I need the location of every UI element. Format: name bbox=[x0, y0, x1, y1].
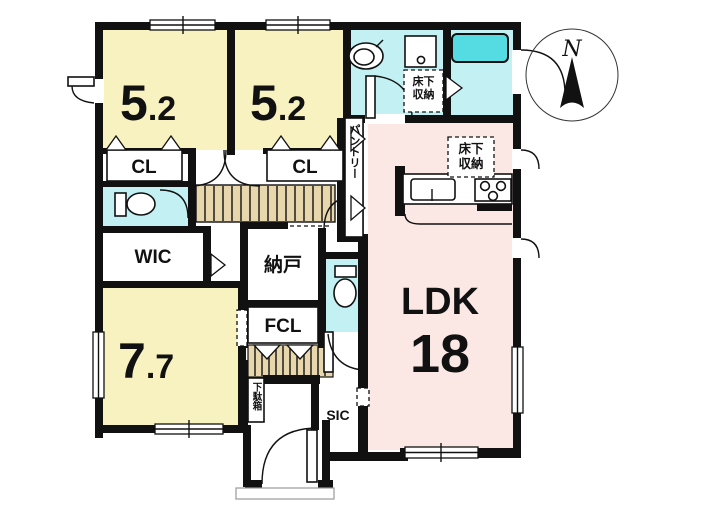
compass: N bbox=[526, 29, 618, 121]
floor-plan-svg: N 5.2 5.2 7.7 CL CL WIC 納戸 FCL SIC LDK 1… bbox=[0, 0, 705, 525]
door-arc-bedroom2 bbox=[224, 150, 260, 186]
sic-ldk-opening bbox=[357, 388, 369, 406]
toilet2-fixture bbox=[334, 266, 356, 307]
nando-label: 納戸 bbox=[264, 253, 302, 276]
wic-label: WIC bbox=[135, 247, 172, 268]
sic-label: SIC bbox=[326, 407, 349, 423]
arc-ldk-swing2 bbox=[521, 239, 539, 258]
pantry-label: パントリー bbox=[348, 124, 361, 179]
underfloor-washroom-line2: 収納 bbox=[413, 87, 435, 101]
door-gap-topleft bbox=[94, 79, 104, 103]
door-leaf-entrance bbox=[307, 430, 317, 482]
washing-machine bbox=[405, 36, 436, 67]
closet1-label: CL bbox=[131, 157, 157, 178]
gap-ldk-swing1 bbox=[512, 149, 522, 169]
closet2-label: CL bbox=[292, 157, 318, 178]
toilet1-fixture bbox=[115, 193, 155, 216]
gap-ldk-swing2 bbox=[512, 238, 522, 258]
underfloor-ldk-line1: 床下 bbox=[458, 141, 484, 156]
underfloor-washroom-line1: 床下 bbox=[413, 74, 435, 88]
ldk-size: 18 bbox=[410, 324, 470, 384]
door-leaf-topleft bbox=[68, 77, 94, 86]
shoe-cabinet-label: 下駄箱 bbox=[251, 382, 264, 411]
stairs bbox=[196, 185, 335, 222]
floor-plan-page: N 5.2 5.2 7.7 CL CL WIC 納戸 FCL SIC LDK 1… bbox=[0, 0, 705, 525]
window-bedroom3-left bbox=[93, 332, 104, 398]
bathtub bbox=[452, 34, 508, 62]
arc-ldk-swing1 bbox=[521, 150, 539, 169]
window-ldk-right bbox=[512, 347, 523, 413]
fcl-label: FCL bbox=[265, 316, 302, 337]
gap-bath-window bbox=[512, 50, 522, 94]
ldk-label: LDK bbox=[401, 281, 480, 323]
underfloor-ldk-line2: 収納 bbox=[458, 156, 483, 171]
door-gap-toilet1 bbox=[181, 190, 188, 220]
door-leaf-washroom bbox=[366, 76, 375, 118]
bedroom3-sliding-door bbox=[237, 310, 247, 346]
fold-wic-door bbox=[211, 254, 225, 276]
door-arc-topleft bbox=[72, 86, 94, 103]
porch bbox=[236, 488, 334, 499]
